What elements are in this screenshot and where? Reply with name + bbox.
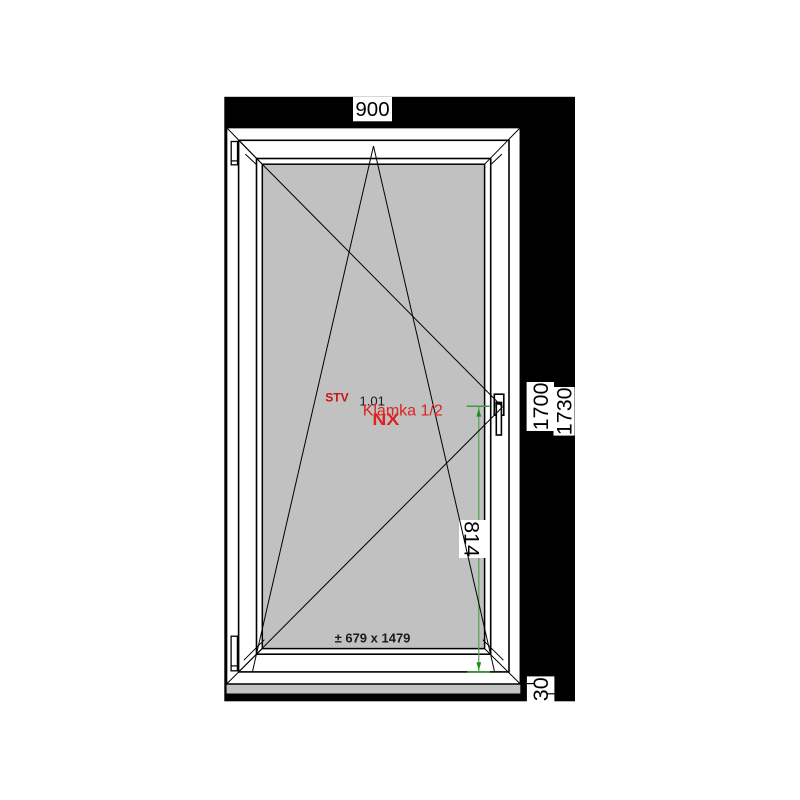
svg-text:± 679 x 1479: ± 679 x 1479 <box>335 630 411 645</box>
svg-text:NX: NX <box>372 411 399 429</box>
svg-text:30: 30 <box>529 677 553 701</box>
svg-text:1730: 1730 <box>553 387 577 435</box>
svg-text:900: 900 <box>355 98 389 121</box>
svg-text:1700: 1700 <box>529 383 553 431</box>
svg-text:814: 814 <box>460 521 484 557</box>
svg-text:STV: STV <box>325 391 348 405</box>
